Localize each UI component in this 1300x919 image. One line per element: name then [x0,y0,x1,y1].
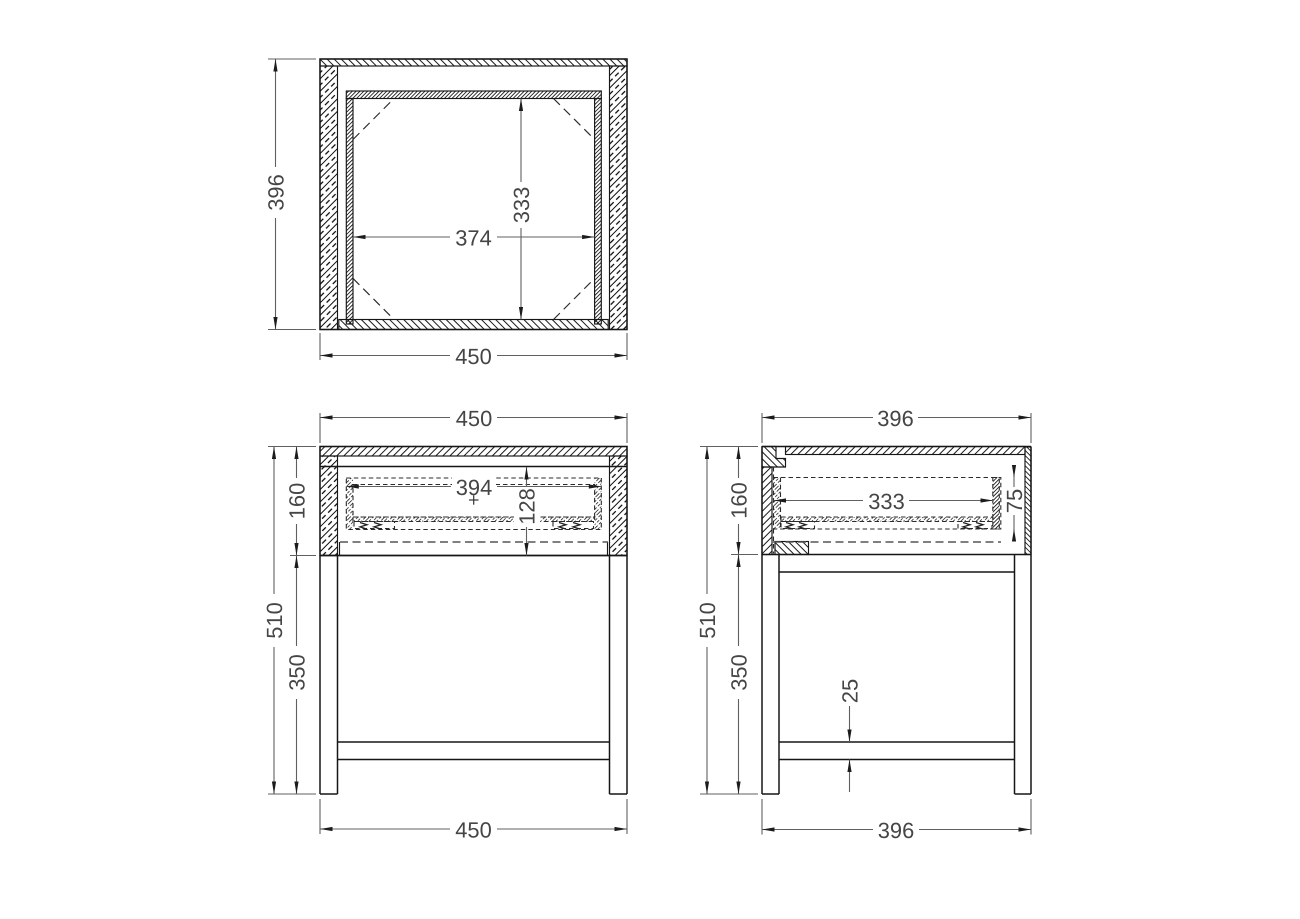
svg-text:25: 25 [838,679,863,704]
svg-text:396: 396 [264,174,289,211]
svg-text:333: 333 [509,187,534,224]
svg-text:350: 350 [285,654,310,691]
svg-text:450: 450 [455,817,492,842]
svg-text:75: 75 [1002,489,1027,514]
svg-text:374: 374 [455,226,492,251]
svg-text:350: 350 [727,654,752,691]
svg-text:333: 333 [868,489,905,514]
svg-text:450: 450 [455,344,492,369]
svg-text:160: 160 [727,482,752,519]
svg-text:396: 396 [878,818,915,843]
svg-text:160: 160 [285,483,310,520]
svg-text:510: 510 [695,602,720,639]
svg-text:396: 396 [877,406,914,431]
svg-text:510: 510 [262,602,287,639]
svg-text:450: 450 [456,406,493,431]
svg-text:128: 128 [515,488,540,525]
